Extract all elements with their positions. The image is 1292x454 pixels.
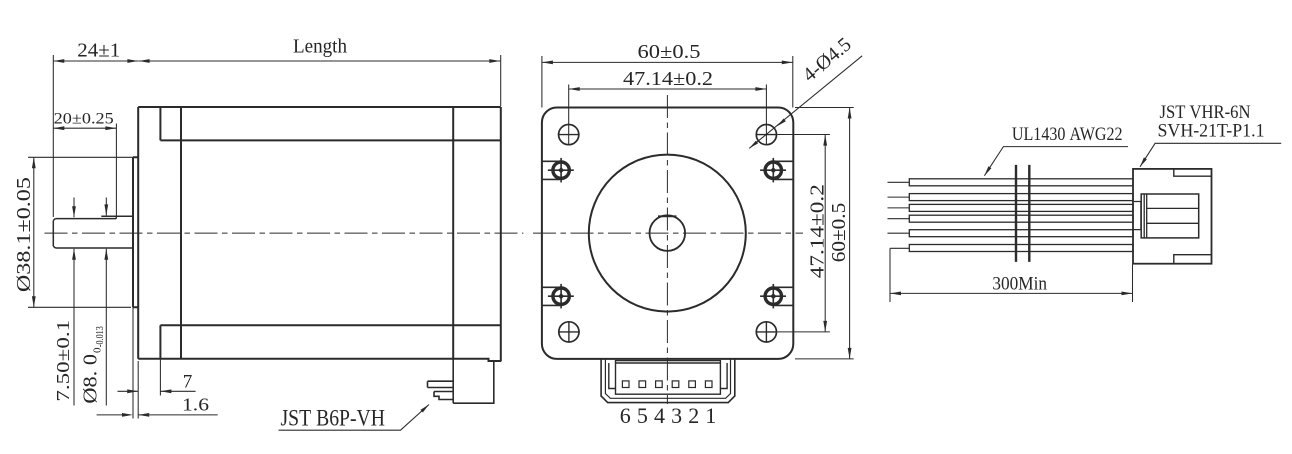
svg-text:-0.013: -0.013 <box>94 326 106 347</box>
svg-text:47.14±0.2: 47.14±0.2 <box>623 68 713 90</box>
svg-text:20±0.25: 20±0.25 <box>54 110 114 127</box>
svg-text:300Min: 300Min <box>992 273 1047 294</box>
svg-text:Length: Length <box>293 35 347 57</box>
svg-text:2: 2 <box>688 403 699 428</box>
svg-text:60±0.5: 60±0.5 <box>829 203 850 263</box>
svg-text:Ø8. 0: Ø8. 0 <box>80 354 102 404</box>
svg-text:47.14±0.2: 47.14±0.2 <box>808 184 829 278</box>
svg-text:7: 7 <box>183 372 193 393</box>
svg-text:UL1430 AWG22: UL1430 AWG22 <box>1012 124 1123 145</box>
svg-text:6: 6 <box>620 403 631 428</box>
svg-text:1: 1 <box>705 403 716 428</box>
svg-text:60±0.5: 60±0.5 <box>638 41 701 63</box>
svg-text:JST B6P-VH: JST B6P-VH <box>281 406 386 431</box>
svg-text:5: 5 <box>637 403 648 428</box>
svg-text:3: 3 <box>671 403 682 428</box>
svg-text:SVH-21T-P1.1: SVH-21T-P1.1 <box>1158 120 1265 141</box>
svg-text:4: 4 <box>654 403 665 428</box>
svg-text:1.6: 1.6 <box>182 395 209 415</box>
svg-text:7.50±0.1: 7.50±0.1 <box>53 320 73 402</box>
svg-text:24±1: 24±1 <box>77 39 120 61</box>
svg-text:Ø38.1±0.05: Ø38.1±0.05 <box>14 177 35 292</box>
